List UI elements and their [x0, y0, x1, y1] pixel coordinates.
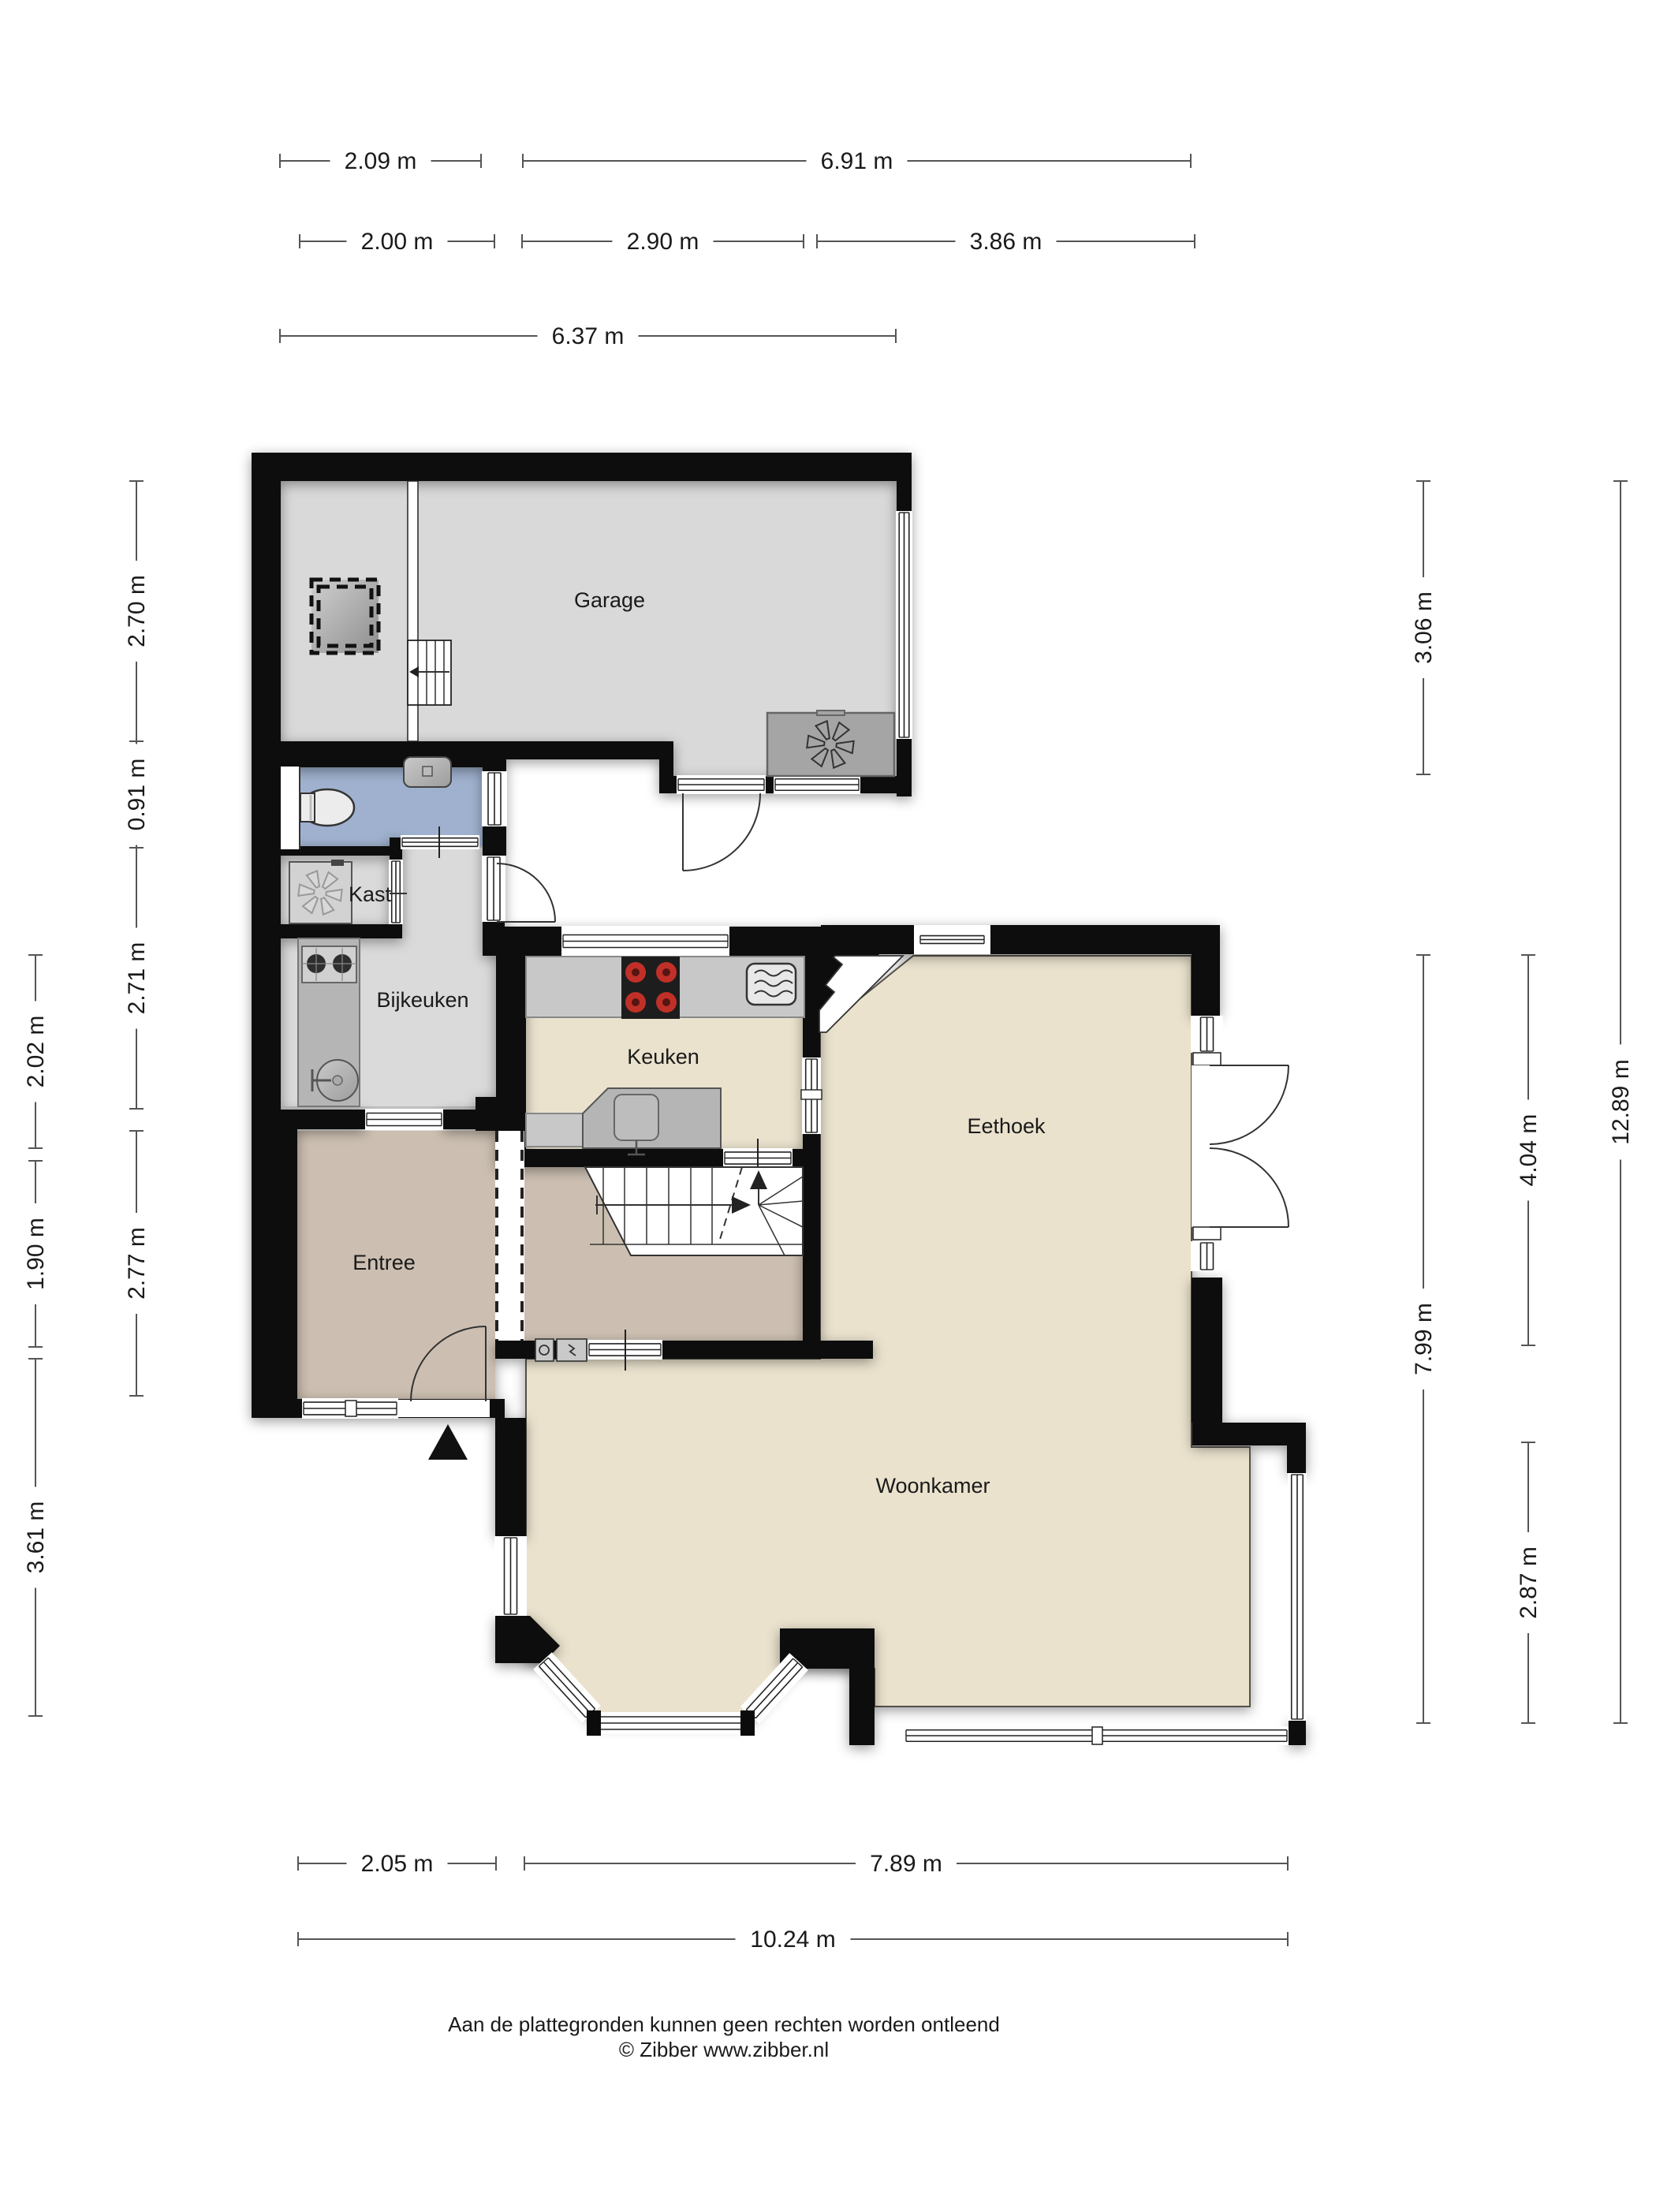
svg-text:Garage: Garage	[574, 588, 645, 612]
svg-text:Entree: Entree	[352, 1251, 416, 1274]
svg-text:2.09 m: 2.09 m	[345, 148, 417, 174]
svg-text:1.90 m: 1.90 m	[23, 1218, 49, 1290]
svg-text:Aan de plattegronden kunnen ge: Aan de plattegronden kunnen geen rechten…	[448, 2012, 1000, 2036]
svg-text:3.61 m: 3.61 m	[23, 1501, 49, 1574]
svg-text:7.89 m: 7.89 m	[870, 1851, 942, 1877]
svg-text:4.04 m: 4.04 m	[1516, 1114, 1542, 1187]
svg-text:Keuken: Keuken	[627, 1045, 699, 1069]
svg-text:2.87 m: 2.87 m	[1516, 1546, 1542, 1619]
svg-text:2.00 m: 2.00 m	[361, 229, 434, 255]
svg-text:Eethoek: Eethoek	[967, 1114, 1046, 1138]
svg-text:2.90 m: 2.90 m	[627, 229, 699, 255]
svg-text:0.91 m: 0.91 m	[124, 759, 150, 831]
svg-text:2.02 m: 2.02 m	[23, 1016, 49, 1088]
svg-text:Bijkeuken: Bijkeuken	[376, 988, 468, 1012]
svg-text:6.91 m: 6.91 m	[821, 148, 893, 174]
svg-text:12.89 m: 12.89 m	[1608, 1059, 1634, 1144]
svg-text:3.06 m: 3.06 m	[1411, 591, 1437, 664]
svg-text:2.70 m: 2.70 m	[124, 575, 150, 647]
svg-text:7.99 m: 7.99 m	[1411, 1303, 1437, 1375]
svg-text:Kast: Kast	[349, 882, 392, 906]
svg-text:© Zibber www.zibber.nl: © Zibber www.zibber.nl	[619, 2038, 829, 2061]
svg-text:2.77 m: 2.77 m	[124, 1227, 150, 1300]
svg-text:10.24 m: 10.24 m	[750, 1927, 835, 1953]
svg-text:2.71 m: 2.71 m	[124, 942, 150, 1015]
svg-text:3.86 m: 3.86 m	[970, 229, 1042, 255]
svg-text:2.05 m: 2.05 m	[361, 1851, 434, 1877]
svg-text:6.37 m: 6.37 m	[552, 323, 625, 349]
svg-text:Woonkamer: Woonkamer	[875, 1474, 990, 1498]
